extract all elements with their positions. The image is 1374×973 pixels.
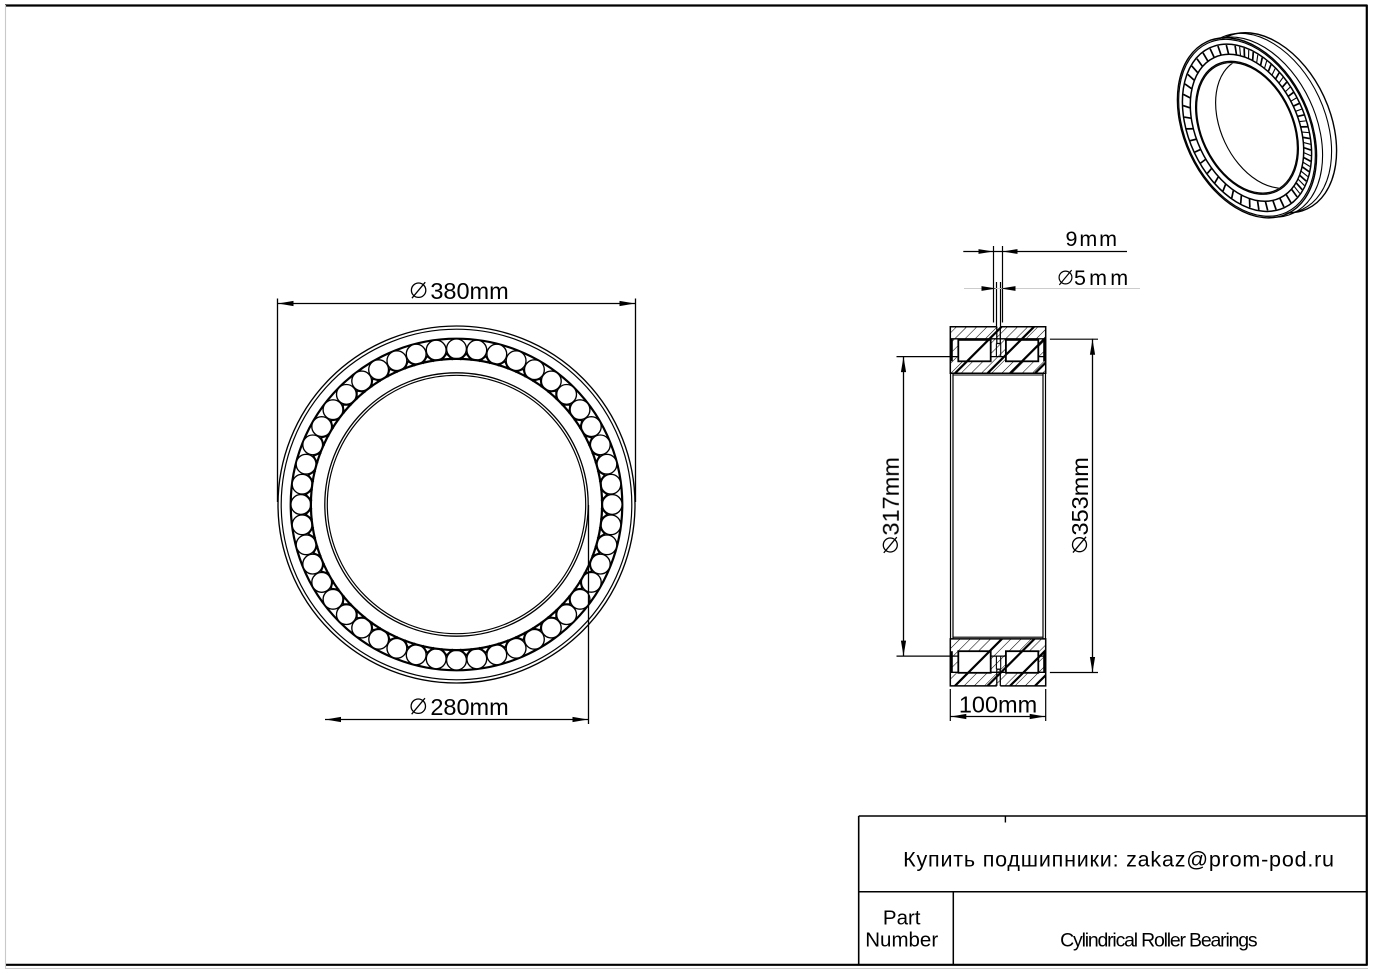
svg-text:Part: Part <box>883 907 921 930</box>
svg-text:280mm: 280mm <box>430 694 508 720</box>
svg-text:Number: Number <box>865 929 938 952</box>
svg-text:100mm: 100mm <box>959 692 1037 718</box>
svg-text:353mm: 353mm <box>1067 457 1093 535</box>
svg-text:Купить подшипники: zakaz@prom-: Купить подшипники: zakaz@prom-pod.ru <box>903 847 1335 871</box>
svg-text:380mm: 380mm <box>430 278 508 304</box>
svg-text:317mm: 317mm <box>878 457 904 535</box>
svg-text:Cylindrical Roller Bearings: Cylindrical Roller Bearings <box>1060 930 1258 952</box>
svg-text:5mm: 5mm <box>1074 266 1131 290</box>
svg-text:9mm: 9mm <box>1066 227 1119 251</box>
